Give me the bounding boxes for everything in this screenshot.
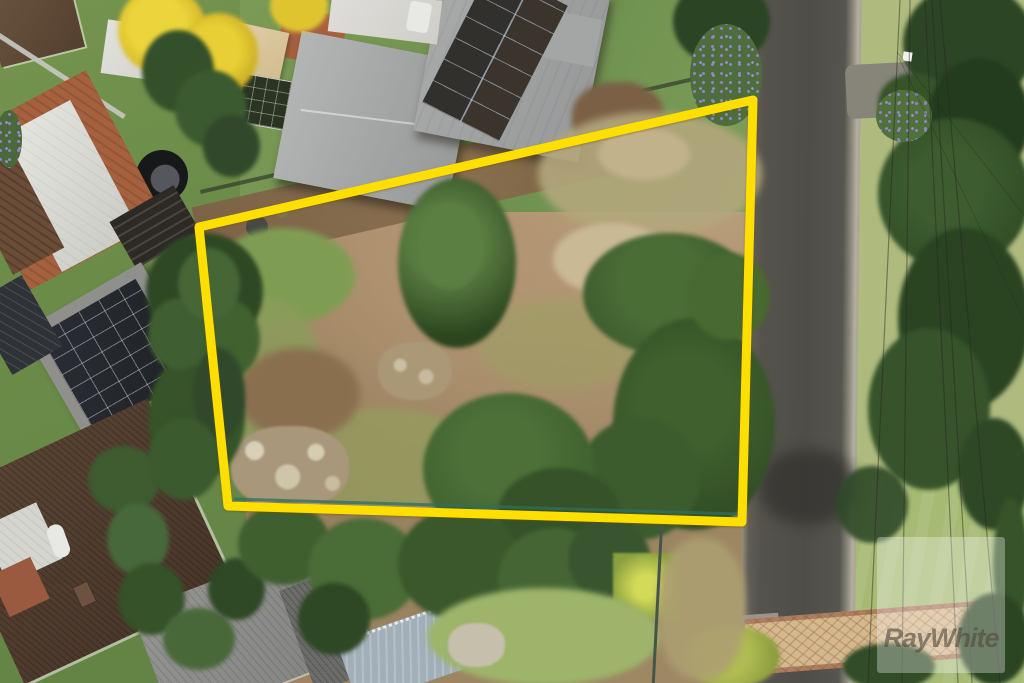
dry-grass-patch bbox=[658, 538, 745, 680]
raywhite-logo-text: RayWhite bbox=[877, 623, 1005, 654]
rock-outcrop bbox=[448, 623, 505, 667]
tree bbox=[203, 115, 260, 177]
roadside-tree bbox=[836, 466, 908, 543]
shrub bbox=[178, 248, 240, 320]
tree bbox=[688, 253, 770, 340]
aerial-property-photo: RayWhite bbox=[0, 0, 1024, 683]
street-road bbox=[740, 0, 861, 683]
small-white-sign bbox=[902, 51, 912, 61]
agapanthus-flower-bed bbox=[876, 90, 932, 142]
rock-outcrop bbox=[231, 426, 349, 508]
rock-outcrop bbox=[378, 342, 452, 400]
tree-highlight bbox=[418, 202, 484, 290]
shrub bbox=[148, 418, 220, 500]
pale-dirt-patch bbox=[598, 128, 690, 180]
tree bbox=[298, 583, 370, 655]
raywhite-watermark: RayWhite bbox=[877, 537, 1005, 673]
agapanthus-flower-bed bbox=[690, 24, 762, 126]
